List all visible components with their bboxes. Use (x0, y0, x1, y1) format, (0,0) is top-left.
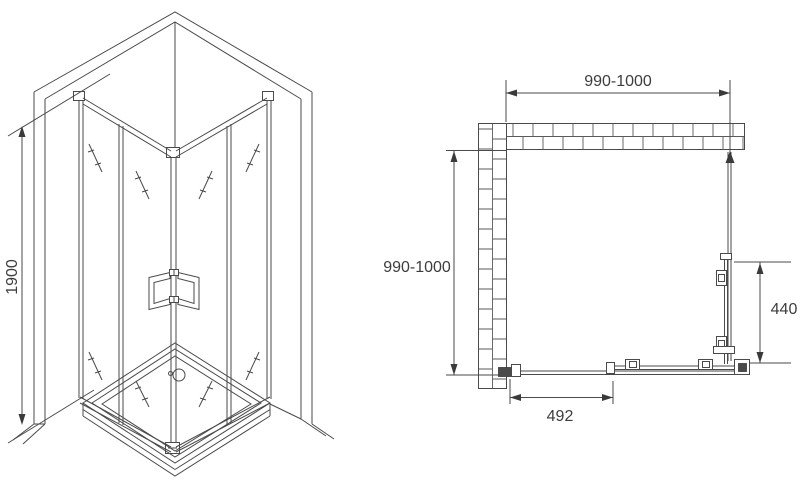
right-glass-assembly (714, 151, 735, 364)
door-handles (149, 270, 199, 310)
right-door-edge (227, 124, 231, 425)
shower-enclosure-technical-drawing: 1900 990-1000 990-1000 (0, 0, 800, 482)
bottom-wall-bracket (499, 368, 512, 377)
dimension-front-door-label: 492 (547, 408, 574, 425)
dimension-height: 1900 (4, 74, 110, 443)
left-wall (479, 124, 507, 389)
left-handle (149, 273, 170, 310)
isometric-view: 1900 (4, 12, 334, 476)
right-wall-bracket (726, 151, 735, 163)
dimension-side-door: 440 (734, 262, 797, 363)
right-handle (178, 273, 199, 310)
drawing-canvas: 1900 990-1000 990-1000 (0, 0, 800, 482)
walls (479, 124, 745, 389)
floor-edge-right (270, 404, 334, 439)
plan-view: 990-1000 990-1000 440 (383, 73, 797, 425)
dimension-width-label: 990-1000 (584, 73, 652, 90)
left-door-edge (119, 124, 123, 425)
dimension-side-door-label: 440 (771, 301, 798, 318)
floor-edge-left (13, 424, 45, 444)
bottom-glass-assembly (499, 360, 750, 377)
bottom-track (505, 371, 748, 375)
top-wall (507, 124, 745, 150)
drain (173, 369, 185, 381)
dimension-front-door: 492 (510, 379, 613, 425)
dimension-height-label: 1900 (4, 259, 21, 295)
dimension-depth-label: 990-1000 (383, 259, 451, 276)
wall-panels (13, 12, 334, 444)
